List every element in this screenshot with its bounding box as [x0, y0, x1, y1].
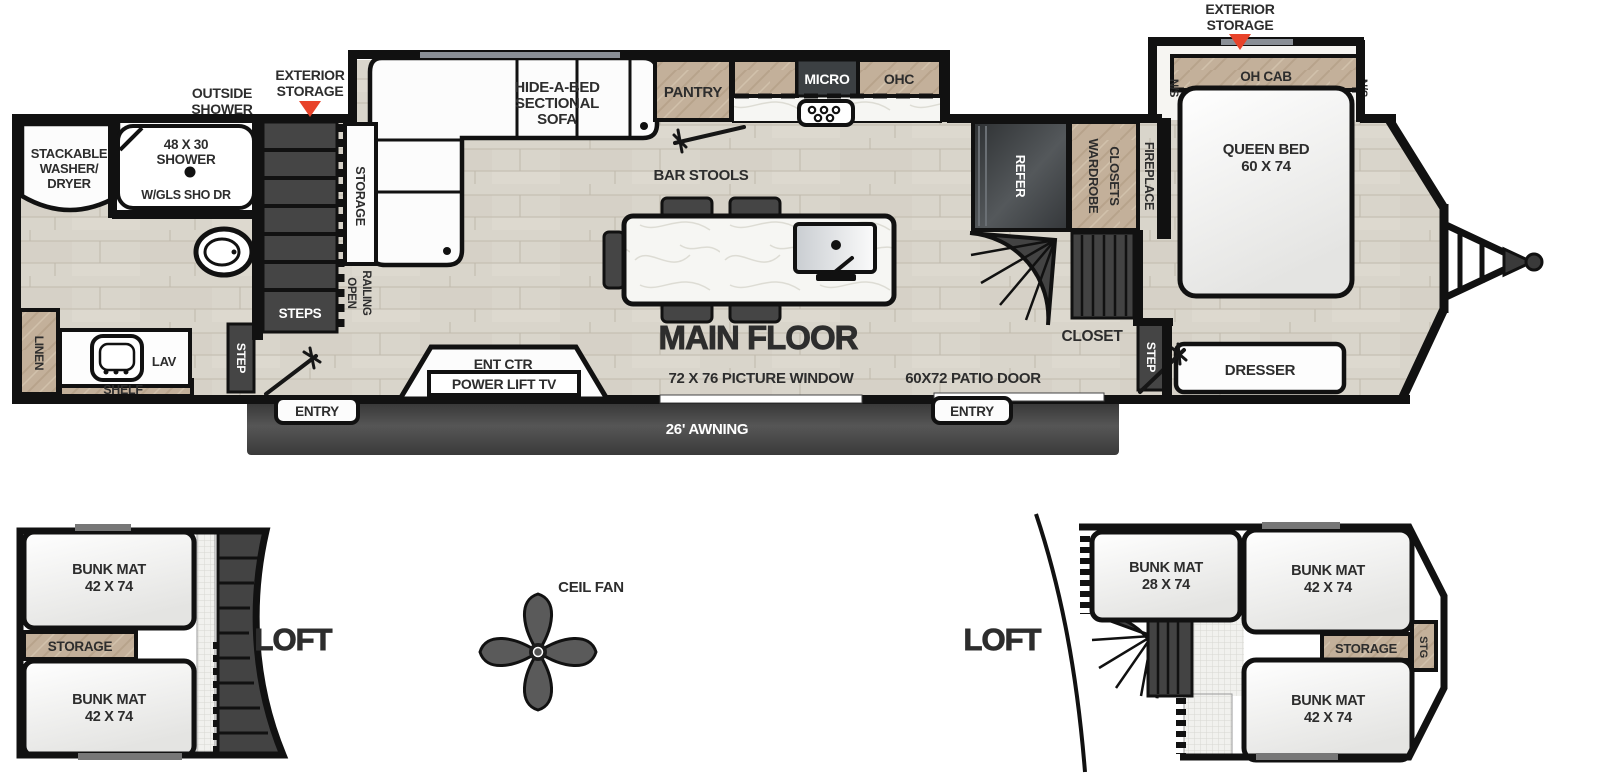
outside-shower-label-1: OUTSIDE [192, 85, 252, 101]
loft-right-window-bottom [1256, 753, 1338, 760]
loft-right-title: LOFT [964, 622, 1042, 657]
island-sink [795, 224, 875, 281]
slideout-window [420, 52, 620, 58]
picture-window-label: 72 X 76 PICTURE WINDOW [668, 370, 854, 387]
bar-stool [604, 232, 624, 288]
shower-label-3: W/GLS SHO DR [141, 188, 231, 202]
outside-shower-label-2: SHOWER [191, 101, 252, 117]
entry-left-label: ENTRY [295, 404, 339, 419]
shower-drain [185, 167, 196, 178]
wardrobe-label-2: CLOSETS [1107, 146, 1122, 206]
refer-label: REFER [1013, 155, 1028, 198]
main-floor-title: MAIN FLOOR [659, 319, 859, 356]
loft-right-straight-stairs [1148, 620, 1192, 696]
washer-label-3: DRYER [47, 176, 91, 191]
loft-right-bunk1-label-2: 28 X 74 [1142, 577, 1190, 593]
loft-right-floor-mesh [1192, 618, 1244, 696]
exterior-storage-right-label-1: EXTERIOR [1205, 1, 1274, 17]
oh-cab-label: OH CAB [1240, 69, 1292, 84]
loft-right-bunk3-label-2: 42 X 74 [1304, 710, 1352, 726]
loft-left-storage-label: STORAGE [48, 639, 113, 654]
overhead-cabinet-left [733, 60, 797, 96]
loft-right-stg-label: STG [1417, 636, 1429, 658]
loft-right-front-curve [1036, 514, 1085, 772]
lav-sink [92, 336, 142, 380]
open-railing-label-2: RAILING [360, 270, 372, 316]
loft-right: BUNK MAT 28 X 74 BUNK MAT 42 X 74 STORAG… [964, 514, 1444, 772]
washer-label-2: WASHER/ [40, 161, 99, 176]
entry-right-label: ENTRY [950, 404, 994, 419]
toilet [196, 229, 252, 275]
shelf-label: SHELF [103, 383, 143, 397]
bath-step-label: STEP [234, 343, 248, 373]
wardrobe-label-1: WARDROBE [1086, 139, 1101, 215]
ent-ctr-label: ENT CTR [474, 356, 533, 372]
loft-left-window-top [75, 524, 131, 531]
exterior-storage-right-label-2: STORAGE [1207, 17, 1274, 33]
loft-right-storage-label: STORAGE [1335, 641, 1398, 656]
loft-right-netting [1184, 694, 1232, 756]
rv-floorplan: 26' AWNING HIDE-A-BED SECTIONAL SOFA [0, 0, 1600, 773]
lav-label: LAV [152, 354, 177, 369]
sofa-label-1: HIDE-A-BED [514, 79, 600, 96]
main-floor-plan: 26' AWNING HIDE-A-BED SECTIONAL SOFA [12, 1, 1542, 455]
open-railing-label-1: OPEN [345, 277, 357, 308]
ceiling-fan: CEIL FAN [480, 579, 624, 710]
loft-left-netting [197, 532, 215, 754]
fireplace-label: FIREPLACE [1142, 142, 1156, 210]
loft-left-bunk1-label-2: 42 X 74 [85, 579, 133, 595]
linen-label: LINEN [32, 336, 46, 371]
queen-bed-label-2: 60 X 74 [1241, 158, 1292, 175]
loft-right-bunk2-label-2: 42 X 74 [1304, 580, 1352, 596]
wardrobe-closets [1070, 122, 1138, 230]
closet-label: CLOSET [1061, 328, 1123, 345]
loft-left-title: LOFT [255, 622, 333, 657]
loft-right-bunk2-label-1: BUNK MAT [1291, 563, 1365, 579]
power-lift-tv-label: POWER LIFT TV [452, 376, 557, 392]
loft-right-window-top [1262, 522, 1340, 529]
galley-right: REFER WARDROBE CLOSETS FIREPLACE [973, 122, 1156, 230]
loft-right-bunk1-label-1: BUNK MAT [1129, 560, 1203, 576]
bunk-mat [1092, 532, 1240, 620]
shower-label-2: SHOWER [157, 152, 217, 167]
queen-bed-label-1: QUEEN BED [1223, 141, 1310, 158]
ceil-fan-label: CEIL FAN [558, 579, 624, 596]
steps-label: STEPS [279, 306, 322, 321]
loft-left-bunk1-label-1: BUNK MAT [72, 562, 146, 578]
sofa-label-3: SOFA [537, 111, 577, 128]
bar-stools-label: BAR STOOLS [653, 167, 748, 184]
exterior-storage-left-label-2: STORAGE [277, 83, 344, 99]
nightstand-left-label: N/S [1167, 79, 1179, 98]
entertainment-center: ENT CTR POWER LIFT TV [400, 347, 607, 399]
awning-label: 26' AWNING [666, 421, 749, 438]
fan-icon [480, 594, 596, 710]
shower-label-1: 48 X 30 [164, 137, 208, 152]
hitch [1444, 224, 1542, 298]
cooktop [799, 101, 853, 125]
loft-left-bunk2-label-1: BUNK MAT [72, 692, 146, 708]
loft-left-bunk2-label-2: 42 X 74 [85, 709, 133, 725]
bedroom-slideout-window [1221, 39, 1293, 45]
steps-column [263, 122, 337, 332]
picture-window [660, 395, 862, 403]
floorplan-canvas: 26' AWNING HIDE-A-BED SECTIONAL SOFA [0, 0, 1600, 773]
loft-left: BUNK MAT 42 X 74 STORAGE BUNK MAT 42 X 7… [20, 524, 333, 760]
storage-cubby-label: STORAGE [353, 166, 367, 226]
ohc-label: OHC [884, 71, 914, 87]
queen-bed [1180, 88, 1352, 296]
bedroom-step-label: STEP [1144, 342, 1158, 372]
exterior-storage-left-label-1: EXTERIOR [275, 67, 344, 83]
micro-label: MICRO [804, 71, 850, 87]
patio-door-label: 60X72 PATIO DOOR [905, 370, 1041, 387]
loft-left-window-bottom [78, 753, 182, 760]
sofa-label-2: SECTIONAL [515, 95, 599, 112]
loft-right-bunk3-label-1: BUNK MAT [1291, 693, 1365, 709]
dresser-label: DRESSER [1225, 362, 1296, 379]
pantry-label: PANTRY [664, 84, 722, 101]
washer-label-1: STACKABLE [31, 146, 108, 161]
